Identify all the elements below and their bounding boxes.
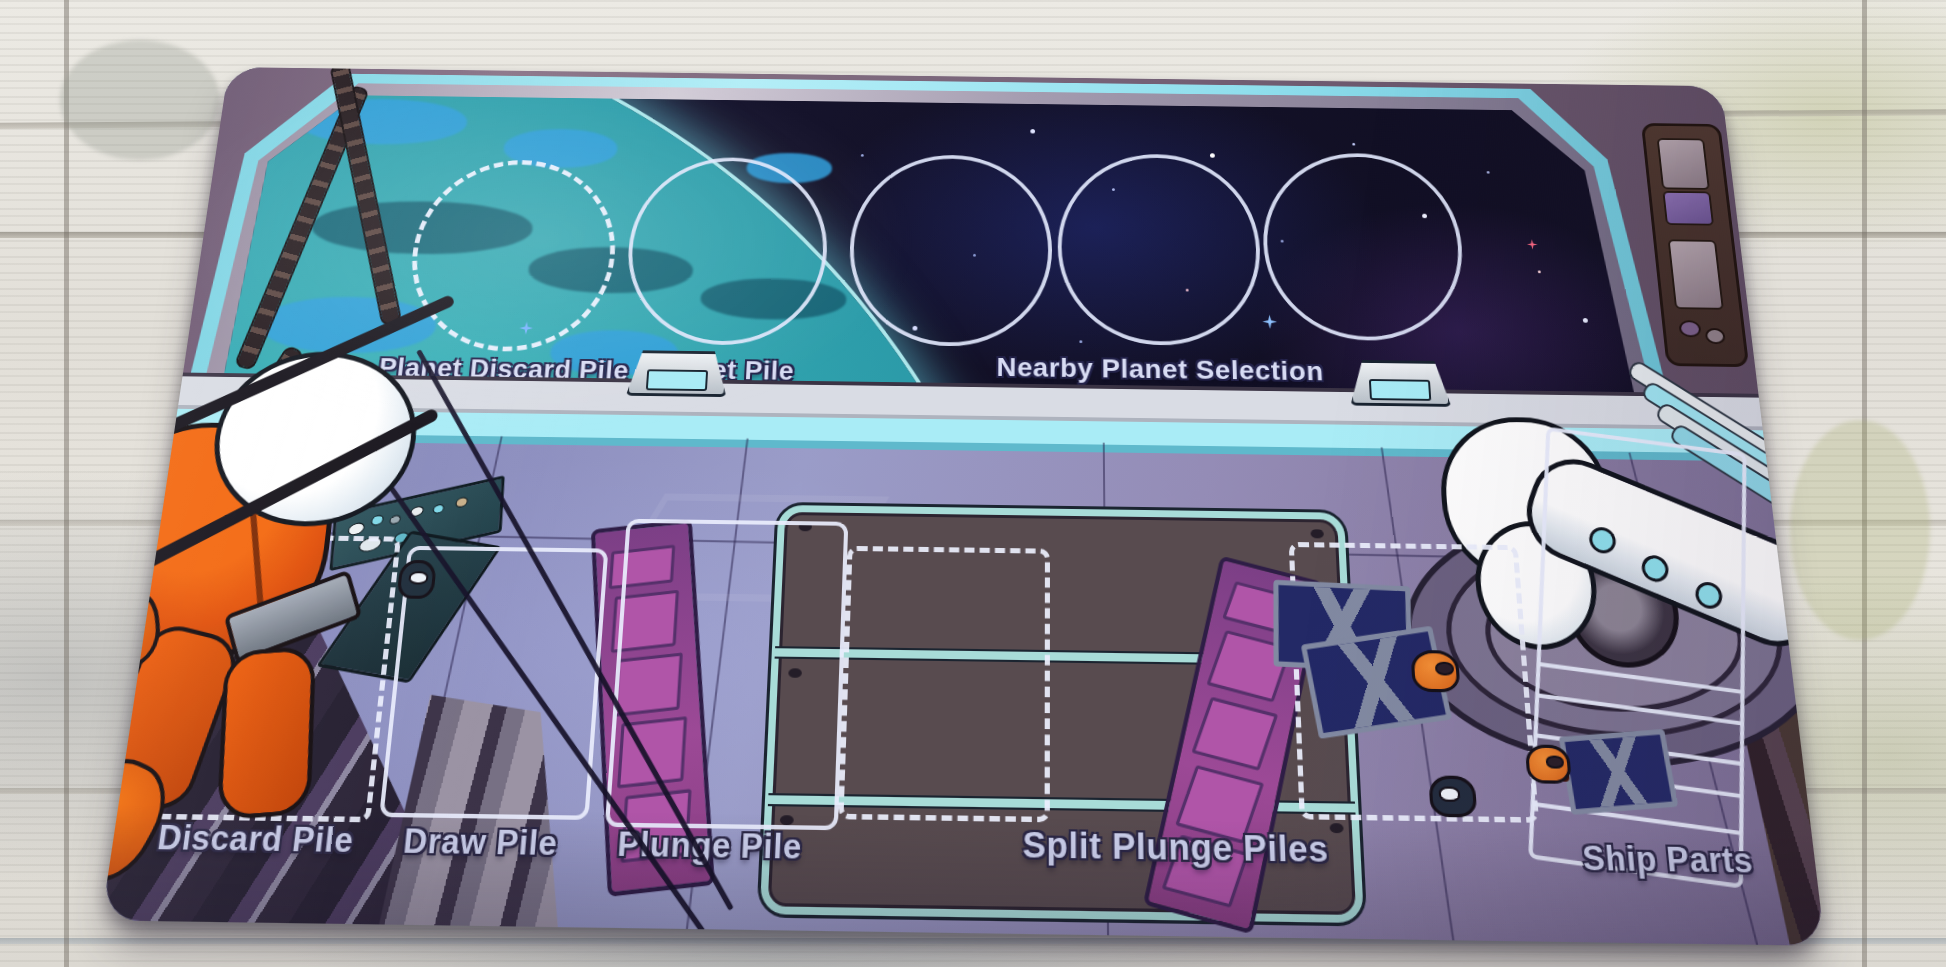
- star-sparkle-icon: [1262, 315, 1277, 329]
- panel-plate: [1662, 191, 1714, 226]
- rack-row-line: [1538, 693, 1741, 725]
- star-sparkle-icon: [1526, 239, 1537, 249]
- crewmate-visor: [1545, 755, 1564, 768]
- hatch-rivet: [1329, 823, 1343, 833]
- wood-moss-blotch: [60, 40, 220, 160]
- photo-of-playmat: Planet Discard Pile Planet Pile Nearby P…: [0, 0, 1946, 967]
- nearby-planet-selection-label: Nearby Planet Selection: [996, 352, 1324, 387]
- ship-parts-label: Ship Parts: [1581, 839, 1755, 882]
- rack-row-line: [1539, 662, 1741, 694]
- nearby-planet-slot-1: [847, 154, 1052, 347]
- panel-plate: [1657, 138, 1710, 190]
- ship-parts-rack-zone: [1528, 427, 1746, 889]
- nearby-planet-slot-2: [1058, 153, 1264, 346]
- chain-rig: [329, 67, 402, 327]
- panel-button: [1705, 328, 1726, 344]
- nearby-planet-slot-3: [1260, 152, 1468, 342]
- cargo-crate: [1559, 729, 1679, 815]
- vent-segment: [1192, 697, 1278, 770]
- panel-plate: [1668, 239, 1724, 309]
- mini-crewmate-orange: [1410, 650, 1460, 693]
- split-plunge-pile-zone-left: [838, 546, 1050, 822]
- wood-plank-joint: [64, 0, 69, 967]
- crewmate-visor: [1438, 786, 1460, 802]
- hatch-rivet: [1310, 529, 1324, 538]
- panel-button: [1678, 320, 1701, 337]
- split-plunge-piles-label: Split Plunge Piles: [1022, 824, 1329, 871]
- playmat: Planet Discard Pile Planet Pile Nearby P…: [101, 67, 1825, 946]
- crewmate-visor: [1435, 662, 1454, 676]
- wood-moss-blotch: [1790, 420, 1930, 640]
- astronaut-leg: [217, 645, 316, 820]
- sill-clamp: [1348, 360, 1451, 407]
- sill-clamp-face: [1369, 379, 1431, 400]
